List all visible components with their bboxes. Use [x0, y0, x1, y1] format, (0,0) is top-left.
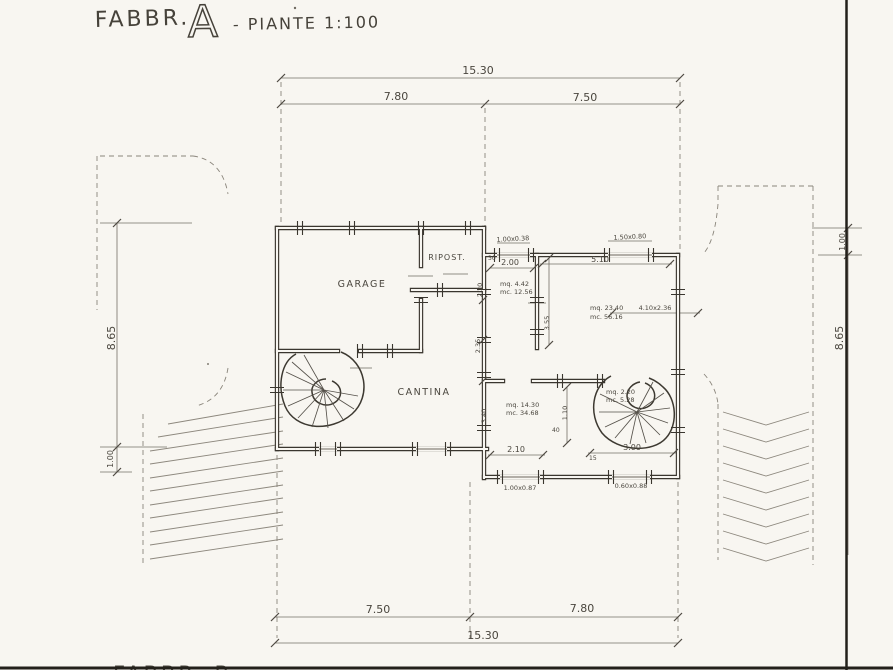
area-stair-mc: mc. 5.28: [606, 396, 635, 404]
dim-top-right: 7.50: [573, 91, 598, 104]
window-dim-2: 1.50x0.80: [613, 232, 646, 242]
dim-main-room-width: 5.10: [591, 255, 609, 264]
room-label-ripostiglio: RIPOST.: [428, 253, 466, 262]
dim-vert-1: 2.20: [476, 283, 484, 297]
window-dim-4: 0.60x0.88: [615, 482, 648, 490]
paper-background: [0, 0, 893, 670]
dim-bottom-left: 7.50: [366, 603, 391, 616]
dim-vert-4: 3.55: [543, 316, 551, 330]
area-main-room-mq: mq. 23.40: [590, 304, 623, 312]
scanned-floor-plan-page: FABBR. A - PIANTE 1:100: [0, 0, 893, 670]
dim-bottom-right: 7.80: [570, 602, 595, 615]
ink-speck: [207, 363, 209, 365]
dim-vert-3: 3.40: [480, 409, 488, 423]
dim-bottom-seg-2: 3.00: [623, 443, 641, 452]
window-dim-1: 1.00x0.38: [496, 234, 529, 244]
area-small-room-mq: mq. 4.42: [500, 280, 529, 288]
ink-speck: [294, 7, 296, 9]
area-lower-room-mq: mq. 14.30: [506, 401, 539, 409]
tick-label-40: 40: [552, 427, 560, 434]
dim-left-small: 1.00: [106, 450, 115, 468]
dim-bottom-total: 15.30: [467, 629, 499, 642]
tick-label-15: 15: [589, 455, 597, 462]
room-label-garage: GARAGE: [338, 279, 387, 290]
dim-top-left: 7.80: [384, 90, 409, 103]
tick-label-30: 30: [488, 255, 496, 262]
dim-left-main: 8.65: [105, 326, 118, 351]
title-letter-a: A: [187, 0, 218, 48]
dim-exterior-opening: 4.10x2.36: [639, 304, 672, 312]
area-stair-mq: mq. 2.20: [606, 388, 635, 396]
plan-subtitle: - PIANTE 1:100: [233, 12, 381, 34]
area-small-room-mc: mc. 12.56: [500, 288, 533, 296]
dim-small-room-width: 2.00: [501, 258, 519, 267]
dim-right-main: 8.65: [833, 326, 846, 351]
room-label-cantina: CANTINA: [398, 387, 451, 398]
dim-top-total: 15.30: [462, 64, 494, 77]
dim-vert-2: 2.35: [474, 339, 482, 353]
area-lower-room-mc: mc. 34.68: [506, 409, 539, 417]
floor-plan-drawing: FABBR. A - PIANTE 1:100: [0, 0, 893, 670]
area-main-room-mc: mc. 56.16: [590, 313, 623, 321]
dim-bottom-seg-1: 2.10: [507, 445, 525, 454]
window-dim-3: 1.00x0.87: [504, 484, 537, 492]
plan-title: FABBR.: [95, 6, 191, 33]
dim-vert-5: 1.10: [561, 406, 569, 420]
